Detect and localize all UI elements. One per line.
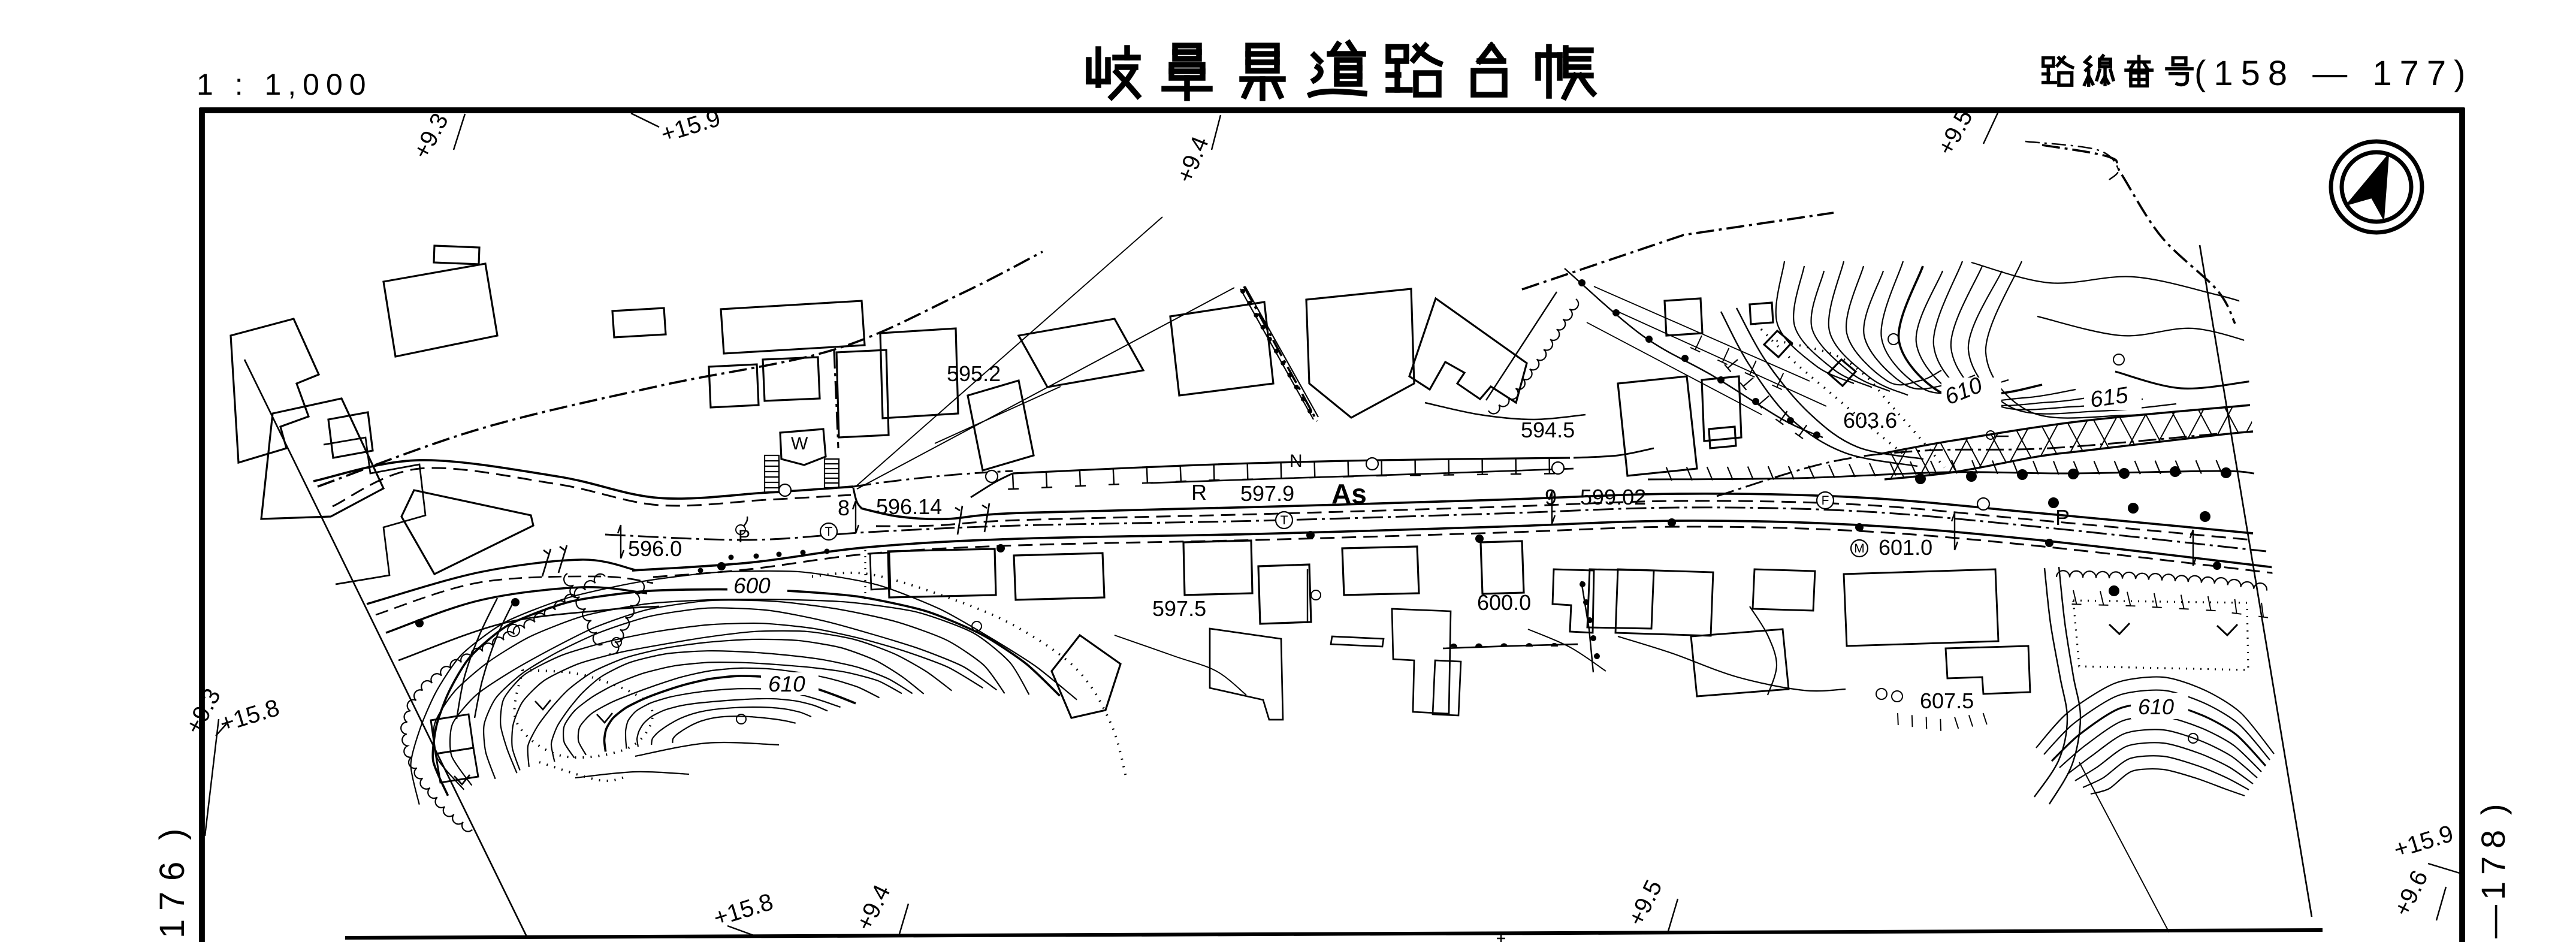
svg-text:7: 7 — [2474, 856, 2512, 875]
svg-text:597.9: 597.9 — [1240, 481, 1294, 506]
svg-text:+15.8: +15.8 — [217, 695, 283, 738]
svg-text:W: W — [791, 434, 808, 454]
svg-text:(158 — 177): (158 — 177) — [2194, 54, 2473, 93]
svg-text:+9.6: +9.6 — [2389, 866, 2433, 920]
svg-text:+15.8: +15.8 — [711, 889, 777, 932]
svg-text:8: 8 — [838, 496, 850, 520]
svg-text:—: — — [2474, 905, 2512, 938]
svg-text:6: 6 — [153, 862, 192, 881]
svg-text:610: 610 — [2138, 695, 2174, 719]
svg-text:+9.3: +9.3 — [408, 109, 454, 163]
svg-text:7: 7 — [153, 892, 192, 911]
svg-text:1: 1 — [153, 919, 192, 938]
svg-text:1: 1 — [2474, 881, 2512, 900]
svg-text:+9.5: +9.5 — [1932, 105, 1978, 159]
svg-text:596.0: 596.0 — [628, 536, 682, 561]
svg-text:T: T — [1281, 514, 1288, 527]
svg-text:600: 600 — [733, 573, 771, 598]
svg-text:+9.4: +9.4 — [851, 881, 896, 935]
svg-text:+15.9: +15.9 — [2391, 820, 2457, 864]
svg-text:594.5: 594.5 — [1521, 418, 1575, 442]
svg-text:615: 615 — [2088, 382, 2130, 413]
svg-text:R: R — [1191, 480, 1207, 505]
svg-text:N: N — [1289, 451, 1303, 471]
svg-text:): ) — [2474, 804, 2512, 815]
svg-text:596.14: 596.14 — [876, 494, 942, 519]
svg-text:As: As — [1331, 478, 1367, 509]
svg-text:T: T — [825, 525, 833, 539]
svg-text:601.0: 601.0 — [1879, 535, 1932, 560]
svg-text:9: 9 — [1545, 485, 1557, 509]
svg-text:597.5: 597.5 — [1152, 596, 1206, 621]
svg-text:1 : 1,000: 1 : 1,000 — [197, 68, 373, 101]
svg-text:+9.5: +9.5 — [1623, 876, 1668, 930]
svg-text:F: F — [1822, 494, 1829, 508]
svg-text:P: P — [2055, 505, 2070, 530]
svg-text:8: 8 — [2474, 830, 2512, 849]
svg-text:599.02: 599.02 — [1580, 485, 1646, 509]
svg-text:): ) — [153, 829, 192, 840]
svg-text:P: P — [738, 527, 750, 547]
svg-text:M: M — [1854, 542, 1865, 555]
svg-text:+9.4: +9.4 — [1172, 133, 1214, 187]
svg-text:610: 610 — [768, 672, 805, 696]
svg-text:607.5: 607.5 — [1920, 689, 1974, 713]
svg-text:603.6: 603.6 — [1843, 408, 1897, 433]
